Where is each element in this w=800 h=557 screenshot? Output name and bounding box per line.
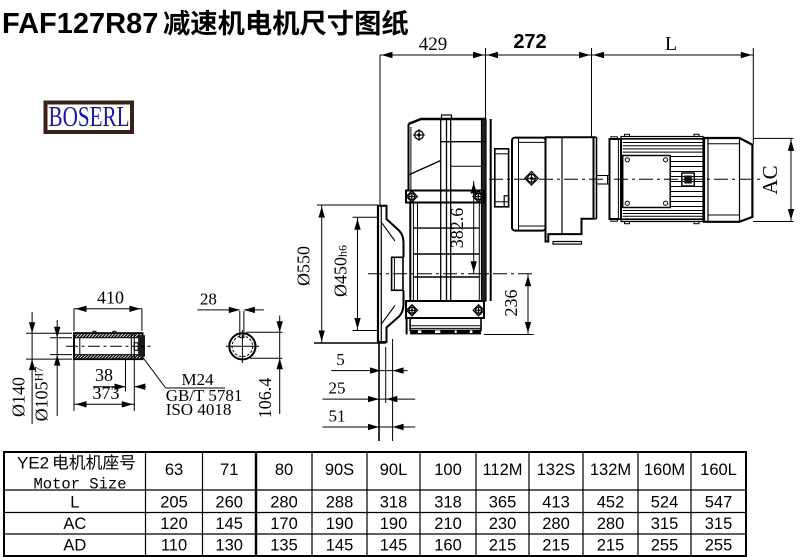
svg-text:215: 215: [597, 537, 625, 555]
svg-text:318: 318: [380, 494, 408, 512]
svg-text:260: 260: [215, 494, 243, 512]
svg-text:YE2: YE2: [17, 454, 49, 473]
svg-text:ISO 4018: ISO 4018: [166, 400, 232, 419]
svg-text:71: 71: [220, 461, 238, 479]
svg-text:429: 429: [419, 34, 448, 55]
svg-text:255: 255: [705, 537, 733, 555]
svg-text:255: 255: [651, 537, 679, 555]
svg-text:120: 120: [160, 515, 188, 533]
svg-text:524: 524: [651, 494, 679, 512]
svg-text:145: 145: [326, 537, 354, 555]
svg-text:130: 130: [215, 537, 243, 555]
svg-text:90L: 90L: [380, 461, 408, 479]
svg-text:160M: 160M: [644, 461, 685, 479]
svg-text:106.4: 106.4: [255, 378, 275, 419]
svg-text:210: 210: [434, 515, 462, 533]
svg-text:Ø550: Ø550: [294, 246, 314, 286]
svg-text:190: 190: [380, 515, 408, 533]
svg-text:FAF127R87: FAF127R87: [2, 8, 158, 40]
svg-text:318: 318: [434, 494, 462, 512]
svg-text:100: 100: [434, 461, 462, 479]
svg-text:AD: AD: [63, 537, 86, 555]
svg-text:Motor Size: Motor Size: [33, 476, 126, 494]
svg-text:112M: 112M: [482, 461, 522, 479]
svg-text:315: 315: [651, 515, 679, 533]
svg-text:160L: 160L: [700, 461, 737, 479]
svg-text:132S: 132S: [537, 461, 576, 479]
svg-text:230: 230: [489, 515, 517, 533]
svg-text:51: 51: [329, 407, 346, 426]
svg-text:38: 38: [95, 365, 113, 385]
svg-text:90S: 90S: [325, 461, 354, 479]
svg-text:365: 365: [489, 494, 517, 512]
svg-text:28: 28: [200, 290, 217, 309]
svg-text:315: 315: [705, 515, 733, 533]
svg-text:288: 288: [326, 494, 354, 512]
svg-text:63: 63: [165, 461, 183, 479]
svg-text:132M: 132M: [590, 461, 631, 479]
svg-text:AC: AC: [758, 165, 782, 194]
svg-text:280: 280: [542, 515, 570, 533]
svg-text:L: L: [665, 33, 677, 55]
svg-text:272: 272: [513, 31, 546, 53]
svg-text:373: 373: [93, 383, 120, 403]
svg-text:280: 280: [597, 515, 625, 533]
svg-text:145: 145: [380, 537, 408, 555]
svg-text:410: 410: [97, 288, 124, 308]
svg-text:280: 280: [270, 494, 298, 512]
svg-text:160: 160: [434, 537, 462, 555]
svg-text:547: 547: [705, 494, 733, 512]
svg-text:5: 5: [336, 350, 345, 369]
svg-text:452: 452: [597, 494, 625, 512]
svg-text:BOSERL: BOSERL: [49, 102, 130, 133]
svg-text:413: 413: [542, 494, 570, 512]
svg-text:145: 145: [215, 515, 243, 533]
svg-text:L: L: [70, 494, 79, 512]
svg-text:170: 170: [270, 515, 298, 533]
svg-text:190: 190: [326, 515, 354, 533]
svg-text:110: 110: [161, 537, 187, 555]
svg-text:Ø140: Ø140: [9, 377, 29, 417]
svg-text:215: 215: [542, 537, 570, 555]
svg-text:25: 25: [329, 379, 346, 398]
svg-text:215: 215: [489, 537, 517, 555]
svg-text:135: 135: [270, 537, 298, 555]
svg-text:382.6: 382.6: [447, 208, 467, 249]
svg-text:205: 205: [160, 494, 188, 512]
svg-text:AC: AC: [63, 515, 86, 533]
svg-text:80: 80: [275, 461, 293, 479]
svg-text:236: 236: [501, 290, 521, 317]
